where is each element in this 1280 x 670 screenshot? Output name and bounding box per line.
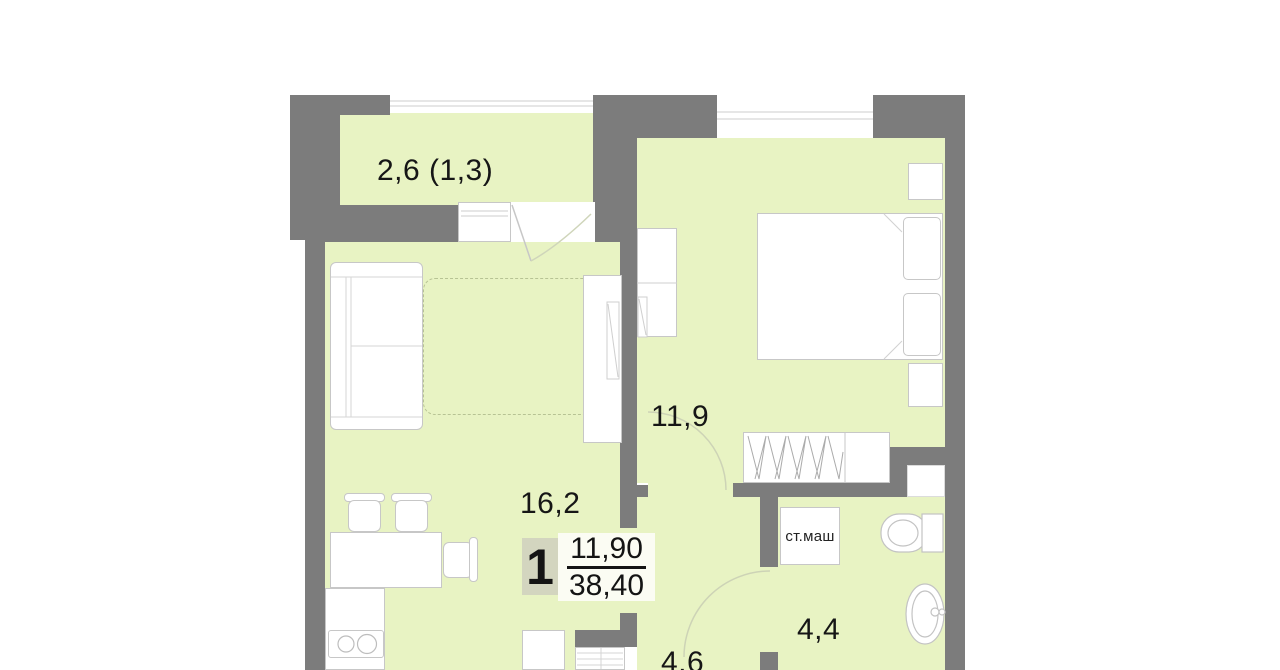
apartment-areas: 11,90 38,40 [558,533,655,601]
room-hall [637,497,760,670]
wall-bathroom-top [733,483,907,497]
wall-balcony-bottom [325,205,458,242]
hall-cabinet [522,630,565,670]
wall-top-right [873,95,965,138]
label-living-area: 16,2 [520,489,580,519]
tv-cabinet-living [583,275,622,443]
window-balcony-door-unit [458,202,511,242]
chair-seat [348,500,381,532]
sofa [330,262,423,430]
label-hall-area: 4,6 [661,648,704,670]
doorway-bedroom [648,483,733,497]
kitchen-table [330,532,442,588]
apartment-living-area: 11,90 [567,533,646,569]
window-bedroom [717,95,873,138]
apartment-total-area: 38,40 [569,569,644,602]
pillow [903,217,941,280]
wall-balcony-divider [593,95,637,242]
wall-hall-bath-lower [760,652,778,670]
wall-hall-bath-upper [760,497,778,567]
wall-living-bedroom [620,242,637,528]
chair-back [469,537,478,582]
label-balcony-area: 2,6 (1,3) [377,156,493,186]
nightstand [908,363,943,407]
doorway-bathroom [760,567,778,652]
opening-balcony-door [511,202,595,242]
wall-top-middle [637,95,717,138]
label-bedroom-area: 11,9 [651,402,709,432]
sofa-bed-outline [423,278,600,415]
wall-bedroom-bath [888,447,945,465]
floorplan-canvas: ст.маш [0,0,1280,670]
pillow [903,293,941,356]
label-bathroom-area: 4,4 [797,615,840,645]
wall-right [945,138,965,670]
apartment-room-count: 1 [522,538,558,595]
duct-niche [907,465,945,497]
washing-machine: ст.маш [780,507,840,565]
stove [328,630,384,658]
wall-hall-bottom-v [620,613,637,647]
nightstand [908,163,943,200]
wardrobe [743,432,890,483]
wall-stub-bedroom-door [637,485,648,497]
dresser-tv-stand [637,228,677,337]
washing-machine-label: ст.маш [781,508,839,564]
wall-top-left [340,95,390,115]
window-balcony [390,95,593,113]
chair-seat [395,500,428,532]
wall-left [305,202,325,670]
shoe-rack [575,647,625,670]
